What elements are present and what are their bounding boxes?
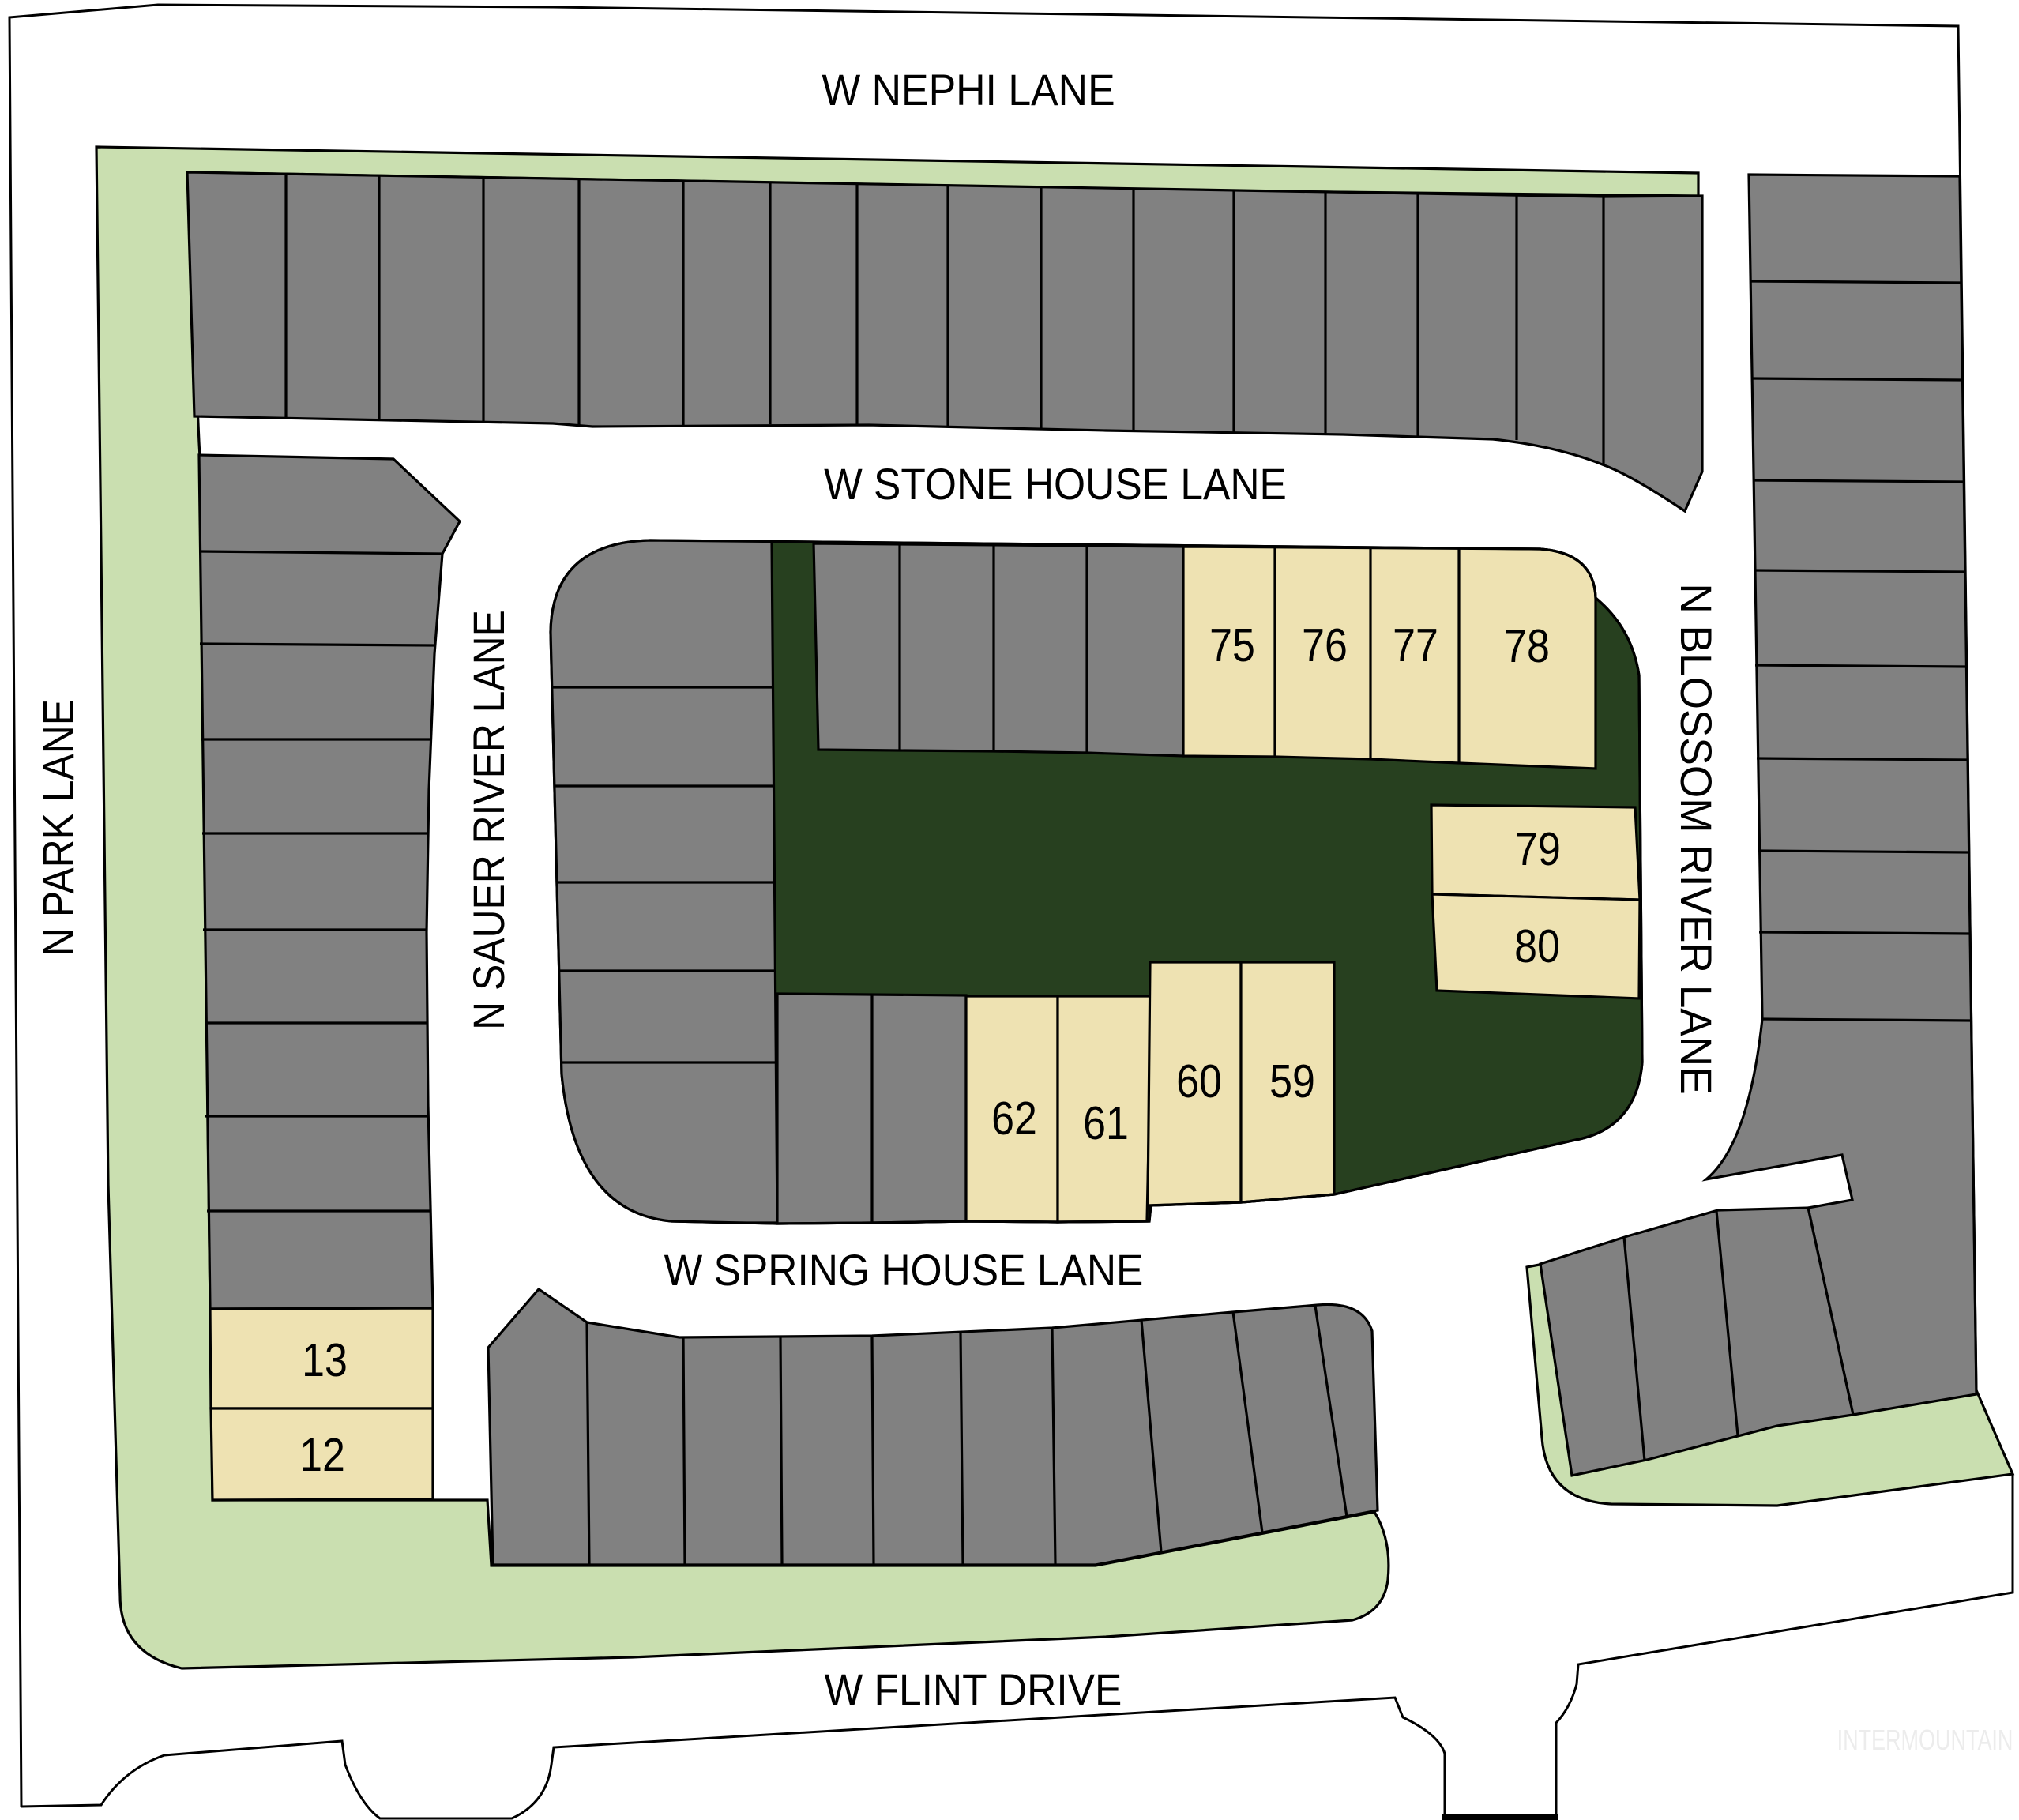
svg-text:13: 13: [302, 1334, 348, 1386]
svg-text:59: 59: [1269, 1055, 1315, 1107]
svg-text:79: 79: [1515, 823, 1561, 875]
svg-text:78: 78: [1504, 620, 1550, 672]
svg-text:12: 12: [299, 1429, 345, 1481]
svg-text:80: 80: [1514, 920, 1560, 972]
svg-text:W NEPHI LANE: W NEPHI LANE: [822, 66, 1115, 115]
svg-text:77: 77: [1393, 619, 1438, 671]
svg-text:76: 76: [1302, 619, 1348, 671]
svg-text:N SAUER RIVER LANE: N SAUER RIVER LANE: [464, 610, 513, 1030]
svg-text:N PARK LANE: N PARK LANE: [34, 699, 83, 957]
svg-text:75: 75: [1209, 619, 1255, 671]
svg-text:W SPRING HOUSE LANE: W SPRING HOUSE LANE: [664, 1246, 1144, 1295]
svg-text:60: 60: [1176, 1055, 1222, 1107]
svg-text:W STONE HOUSE LANE: W STONE HOUSE LANE: [824, 460, 1287, 509]
svg-text:61: 61: [1083, 1097, 1129, 1149]
svg-text:W FLINT DRIVE: W FLINT DRIVE: [825, 1665, 1122, 1714]
svg-text:62: 62: [991, 1092, 1037, 1145]
svg-text:N BLOSSOM RIVER LANE: N BLOSSOM RIVER LANE: [1671, 583, 1721, 1094]
svg-text:INTERMOUNTAIN: INTERMOUNTAIN: [1837, 1724, 2013, 1756]
